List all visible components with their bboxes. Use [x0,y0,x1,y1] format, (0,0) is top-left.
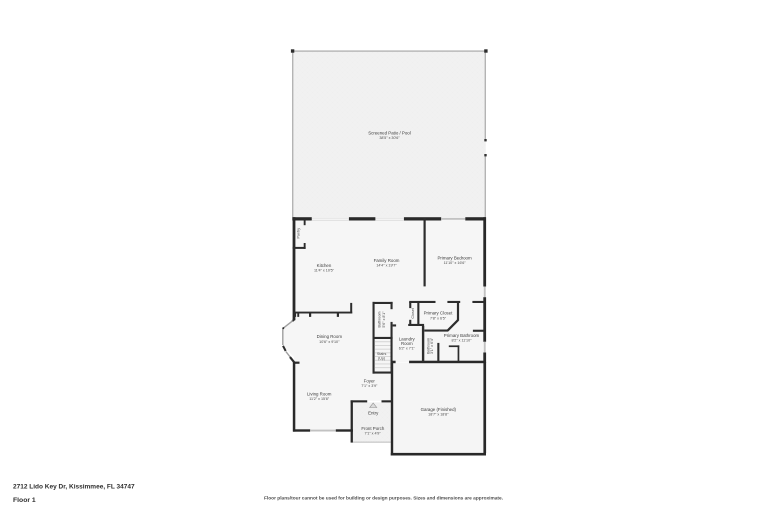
svg-text:Foyer: Foyer [364,379,376,384]
svg-text:11'4" x 10'5": 11'4" x 10'5" [314,269,335,273]
svg-text:Stairs: Stairs [377,352,387,356]
svg-text:2712 Lido Key Dr, Kissimmee, F: 2712 Lido Key Dr, Kissimmee, FL 34747 [13,484,135,491]
svg-text:Closet: Closet [411,308,415,318]
svg-text:11'10" x 16'6": 11'10" x 16'6" [444,261,467,265]
svg-text:Dining Room: Dining Room [317,334,343,339]
svg-text:38'5" x 30'6": 38'5" x 30'6" [379,136,400,140]
svg-text:Garage (Finished): Garage (Finished) [421,407,457,412]
svg-text:Room: Room [401,341,413,346]
svg-text:5'6" x 8'1": 5'6" x 8'1" [382,311,386,328]
svg-text:11'2" x 15'8": 11'2" x 15'8" [309,397,330,401]
svg-text:6'2" x 7'1": 6'2" x 7'1" [399,347,416,351]
svg-text:Front Porch: Front Porch [361,426,384,431]
svg-text:Primary Bedroom: Primary Bedroom [438,256,473,261]
svg-text:Screened Patio / Pool: Screened Patio / Pool [368,131,410,136]
svg-text:Bathroom: Bathroom [378,312,382,328]
svg-text:Primary Closet: Primary Closet [424,311,454,316]
svg-text:Living Room: Living Room [307,391,332,396]
svg-text:8'2" x 11'10": 8'2" x 11'10" [452,339,473,343]
svg-text:(Up): (Up) [378,357,385,361]
svg-text:7'1" x 4'9": 7'1" x 4'9" [365,432,382,436]
svg-text:Entry: Entry [368,411,379,416]
svg-text:Family Room: Family Room [374,258,400,263]
svg-text:Primary Bathroom: Primary Bathroom [444,333,480,338]
svg-text:Floor plans/tour cannot be use: Floor plans/tour cannot be used for buil… [264,496,503,502]
svg-text:14'4" x 19'7": 14'4" x 19'7" [376,264,397,268]
svg-text:3'1" x 6'4": 3'1" x 6'4" [430,337,434,354]
svg-text:18'7" x 18'8": 18'7" x 18'8" [428,413,449,417]
svg-text:7'1" x 3'9": 7'1" x 3'9" [361,384,378,388]
svg-text:10'6" x 9'10": 10'6" x 9'10" [319,340,340,344]
svg-text:Floor 1: Floor 1 [13,497,36,504]
svg-text:7'8" x 6'5": 7'8" x 6'5" [430,316,447,320]
svg-text:Kitchen: Kitchen [317,263,332,268]
svg-text:Pantry: Pantry [296,228,300,239]
